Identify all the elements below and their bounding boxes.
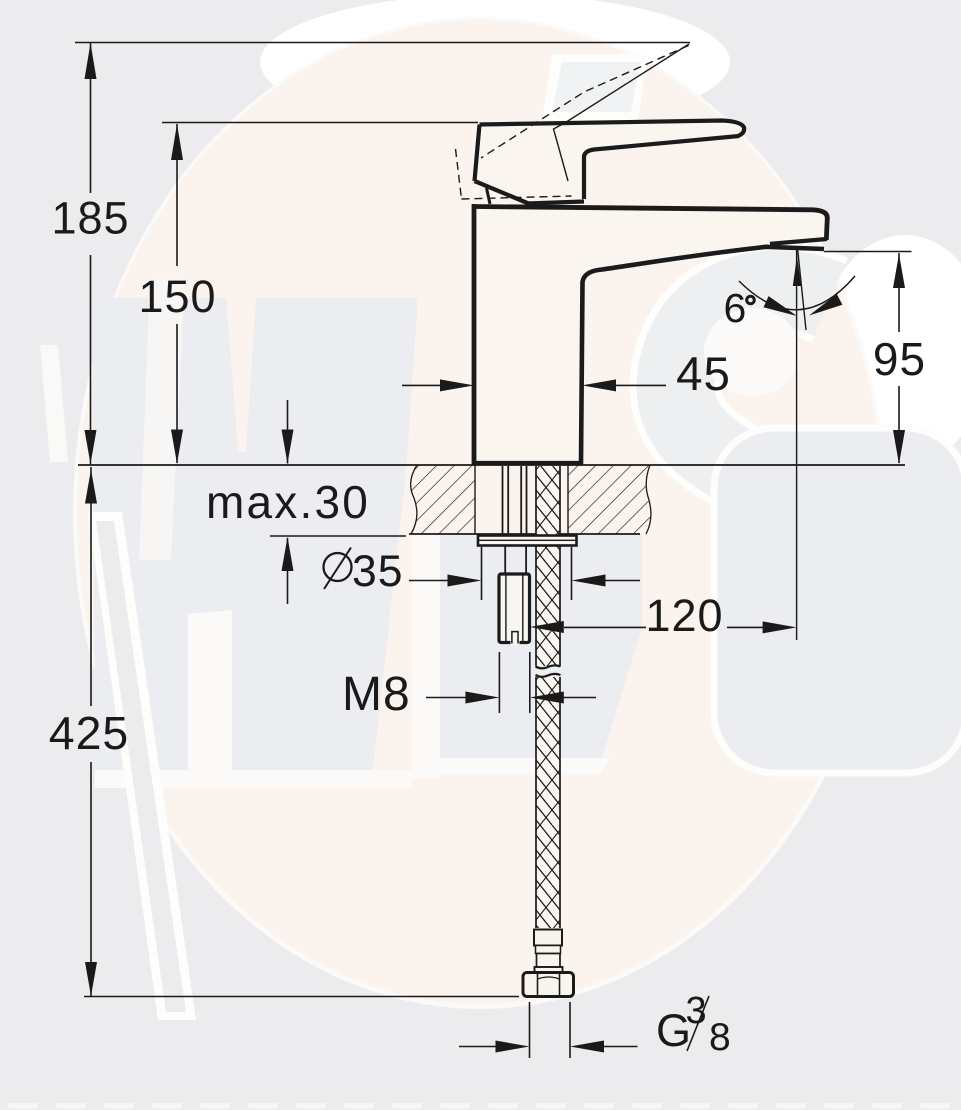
svg-text:185: 185 (51, 193, 129, 244)
svg-text:8: 8 (709, 1016, 732, 1059)
svg-text:35: 35 (352, 547, 404, 596)
svg-text:425: 425 (49, 707, 130, 759)
svg-text:M8: M8 (342, 668, 411, 721)
svg-text:150: 150 (138, 271, 216, 322)
svg-text:45: 45 (676, 348, 731, 401)
svg-text:120: 120 (645, 590, 723, 641)
svg-text:95: 95 (873, 333, 926, 385)
svg-text:6: 6 (724, 285, 748, 331)
svg-text:max.30: max.30 (206, 476, 370, 528)
